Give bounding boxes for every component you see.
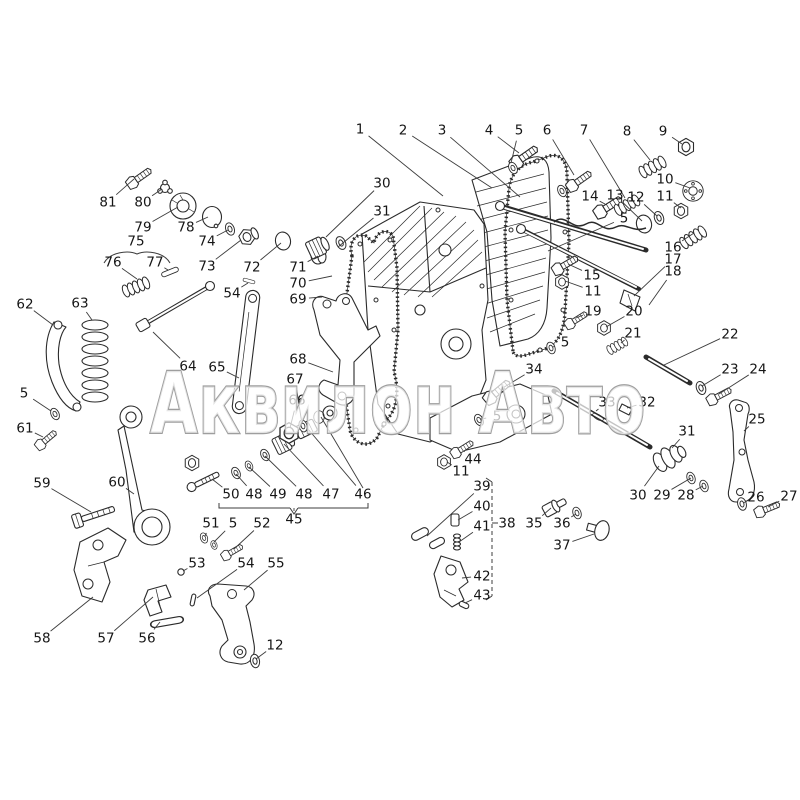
leader-line: [600, 201, 605, 204]
callout-label: 15: [583, 268, 600, 284]
part-bottom-lever: [208, 584, 254, 664]
callout-label: 31: [678, 424, 695, 440]
part-small-lever: [434, 556, 468, 607]
leader-line: [164, 268, 168, 270]
callout-label: 59: [33, 476, 50, 492]
callout-label: 60: [108, 475, 125, 491]
callout-label: 80: [134, 195, 151, 211]
leader-line: [212, 479, 222, 487]
part-bearing-79: [170, 193, 196, 219]
callout-label: 3: [438, 123, 447, 139]
leader-line: [606, 316, 624, 327]
callout-label: 55: [267, 556, 284, 572]
callout-label: 27: [780, 489, 797, 505]
leader-line: [553, 139, 574, 175]
leader-line: [236, 474, 247, 486]
part-washer-5e: [210, 540, 219, 551]
leader-line: [33, 399, 51, 411]
callout-label: 78: [177, 220, 194, 236]
part-washer-12a: [652, 210, 665, 226]
callout-label: 42: [473, 569, 490, 585]
leader-line: [122, 268, 137, 279]
callout-label: 9: [659, 124, 668, 140]
callout-label: 72: [243, 260, 260, 276]
part-knob-37: [585, 517, 611, 542]
callout-label: 28: [677, 488, 694, 504]
callout-label: 10: [656, 172, 673, 188]
leader-line: [249, 467, 270, 487]
part-pin-54: [190, 594, 196, 607]
callout-label: 56: [138, 631, 155, 647]
leader-line: [86, 312, 92, 320]
callout-label: 70: [289, 276, 306, 292]
callout-label: 73: [198, 259, 215, 275]
callout-label: 41: [473, 519, 490, 535]
callout-label: 37: [553, 538, 570, 554]
part-curved-arm: [46, 321, 81, 411]
callout-label: 35: [525, 516, 542, 532]
part-sleeve-39a: [410, 526, 430, 542]
part-lower-bracket: [74, 528, 126, 602]
leader-line: [649, 280, 667, 305]
callout-label: 22: [721, 327, 738, 343]
callout-label: 6: [543, 123, 552, 139]
callout-label: 26: [747, 490, 764, 506]
callout-label: 18: [664, 264, 681, 280]
callout-label: 77: [146, 255, 163, 271]
callout-label: 62: [16, 297, 33, 313]
leader-line: [465, 600, 472, 603]
part-nut-20: [598, 321, 611, 336]
part-nut-11d: [438, 455, 451, 470]
part-oring-72: [274, 231, 292, 251]
callout-label: 7: [580, 123, 589, 139]
part-coil-spring: [82, 320, 108, 402]
part-pin-56: [150, 616, 184, 628]
diagram-canvas: 1234567891011121314515111617181920215222…: [0, 0, 800, 800]
leader-line: [260, 243, 281, 260]
part-ball-53: [178, 569, 184, 575]
callout-label: 75: [127, 234, 144, 250]
part-clover-80: [158, 180, 173, 193]
callout-label: 53: [188, 556, 205, 572]
leader-line: [672, 137, 682, 144]
leader-line: [309, 276, 332, 281]
leader-line: [644, 204, 657, 216]
leader-line: [634, 267, 665, 296]
exploded-parts-diagram: 1234567891011121314515111617181920215222…: [0, 0, 800, 800]
part-screw: [71, 502, 116, 529]
callout-label: 36: [553, 516, 570, 532]
part-pin-77: [161, 266, 179, 277]
callout-label: 51: [202, 516, 219, 532]
leader-line: [412, 136, 492, 188]
part-washer-5c: [545, 341, 557, 355]
leader-line: [234, 530, 254, 549]
callout-label: 14: [581, 189, 598, 205]
part-knurled-30: [305, 234, 332, 259]
callout-label: 63: [71, 296, 88, 312]
callout-label: 4: [485, 123, 494, 139]
callout-label: 11: [452, 464, 469, 480]
leader-line: [634, 140, 650, 160]
callout-label: 5: [561, 335, 570, 351]
callout-label: 13: [606, 188, 623, 204]
part-snap-ring-78: [203, 207, 222, 228]
callout-label: 76: [104, 255, 121, 271]
leader-line: [644, 466, 659, 486]
leader-line: [216, 240, 241, 259]
callout-label: 5: [515, 123, 524, 139]
part-pin-40: [451, 514, 459, 526]
part-valve-35: [541, 495, 568, 518]
callout-label: 31: [373, 204, 390, 220]
callout-label: 81: [99, 195, 116, 211]
callout-label: 30: [629, 488, 646, 504]
leader-line: [35, 433, 43, 437]
part-fork-57: [144, 585, 171, 616]
leader-line: [459, 532, 473, 542]
callout-label: 30: [373, 176, 390, 192]
callout-label: 20: [625, 304, 642, 320]
callout-label: 58: [33, 631, 50, 647]
callout-label: 48: [295, 487, 312, 503]
watermark-text: Аквилон Авто: [150, 355, 646, 454]
part-nut-9: [679, 138, 694, 155]
part-bolt-81: [124, 165, 154, 191]
part-washer-23: [694, 380, 707, 396]
callout-label: 5: [229, 516, 238, 532]
leader-line: [114, 597, 153, 631]
leader-line: [34, 311, 53, 325]
leader-line: [51, 489, 91, 512]
callout-label: 54: [237, 556, 254, 572]
part-washer-36: [571, 506, 583, 520]
part-spring-16: [678, 225, 708, 250]
leader-line: [244, 570, 268, 590]
leader-line: [702, 375, 721, 386]
callout-label: 8: [623, 124, 632, 140]
leader-line: [51, 597, 93, 631]
callout-label: 40: [473, 499, 490, 515]
callout-label: 48: [245, 487, 262, 503]
callout-label: 11: [656, 189, 673, 205]
part-spring-76: [121, 276, 151, 298]
callout-label: 54: [223, 286, 240, 302]
callout-label: 57: [97, 631, 114, 647]
callout-label: 69: [289, 292, 306, 308]
callout-label: 71: [289, 260, 306, 276]
part-nut-11c: [185, 455, 199, 470]
callout-label: 2: [399, 123, 408, 139]
callout-label: 45: [285, 512, 302, 528]
part-bearing-10: [683, 181, 703, 201]
callout-label: 25: [748, 412, 765, 428]
part-washer-74: [224, 222, 236, 237]
part-washer-51: [199, 532, 209, 544]
leader-line: [458, 512, 472, 520]
callout-label: 61: [16, 421, 33, 437]
leader-line: [214, 531, 225, 542]
callout-label: 46: [354, 487, 371, 503]
callout-label: 52: [253, 516, 270, 532]
part-washer-28: [698, 479, 710, 493]
callout-label: 50: [222, 487, 239, 503]
callout-label: 47: [322, 487, 339, 503]
callout-label: 38: [498, 516, 515, 532]
callout-label: 5: [20, 386, 29, 402]
callout-label: 5: [620, 211, 629, 227]
callout-label: 29: [653, 488, 670, 504]
callout-label: 74: [198, 234, 215, 250]
callout-label: 12: [627, 190, 644, 206]
leader-line: [265, 456, 296, 486]
part-boot: [650, 440, 689, 475]
part-bolt-61: [33, 427, 59, 452]
callout-label: 11: [584, 284, 601, 300]
leader-line: [719, 375, 749, 394]
callout-label: 19: [584, 304, 601, 320]
part-pin-54a: [243, 278, 256, 284]
leader-line: [326, 191, 374, 237]
callout-label: 23: [721, 362, 738, 378]
callout-label: 24: [749, 362, 766, 378]
leader-line: [217, 230, 228, 236]
part-washer-5d: [49, 407, 61, 421]
leader-line: [241, 283, 248, 287]
part-collar-31: [334, 235, 348, 251]
part-plug-73: [237, 225, 261, 248]
callout-label: 39: [473, 479, 490, 495]
part-washer-48a: [230, 466, 242, 480]
leader-line: [568, 264, 582, 270]
callout-label: 12: [266, 638, 283, 654]
callout-label: 79: [134, 220, 151, 236]
callout-label: 1: [356, 122, 365, 138]
leader-line: [572, 534, 594, 541]
part-sleeve-39b: [428, 536, 445, 550]
callout-label: 21: [624, 326, 641, 342]
callout-label: 49: [269, 487, 286, 503]
callout-label: 43: [473, 588, 490, 604]
part-nut-11a: [674, 203, 688, 218]
leader-line: [664, 339, 720, 365]
part-washer-12b: [249, 654, 260, 669]
